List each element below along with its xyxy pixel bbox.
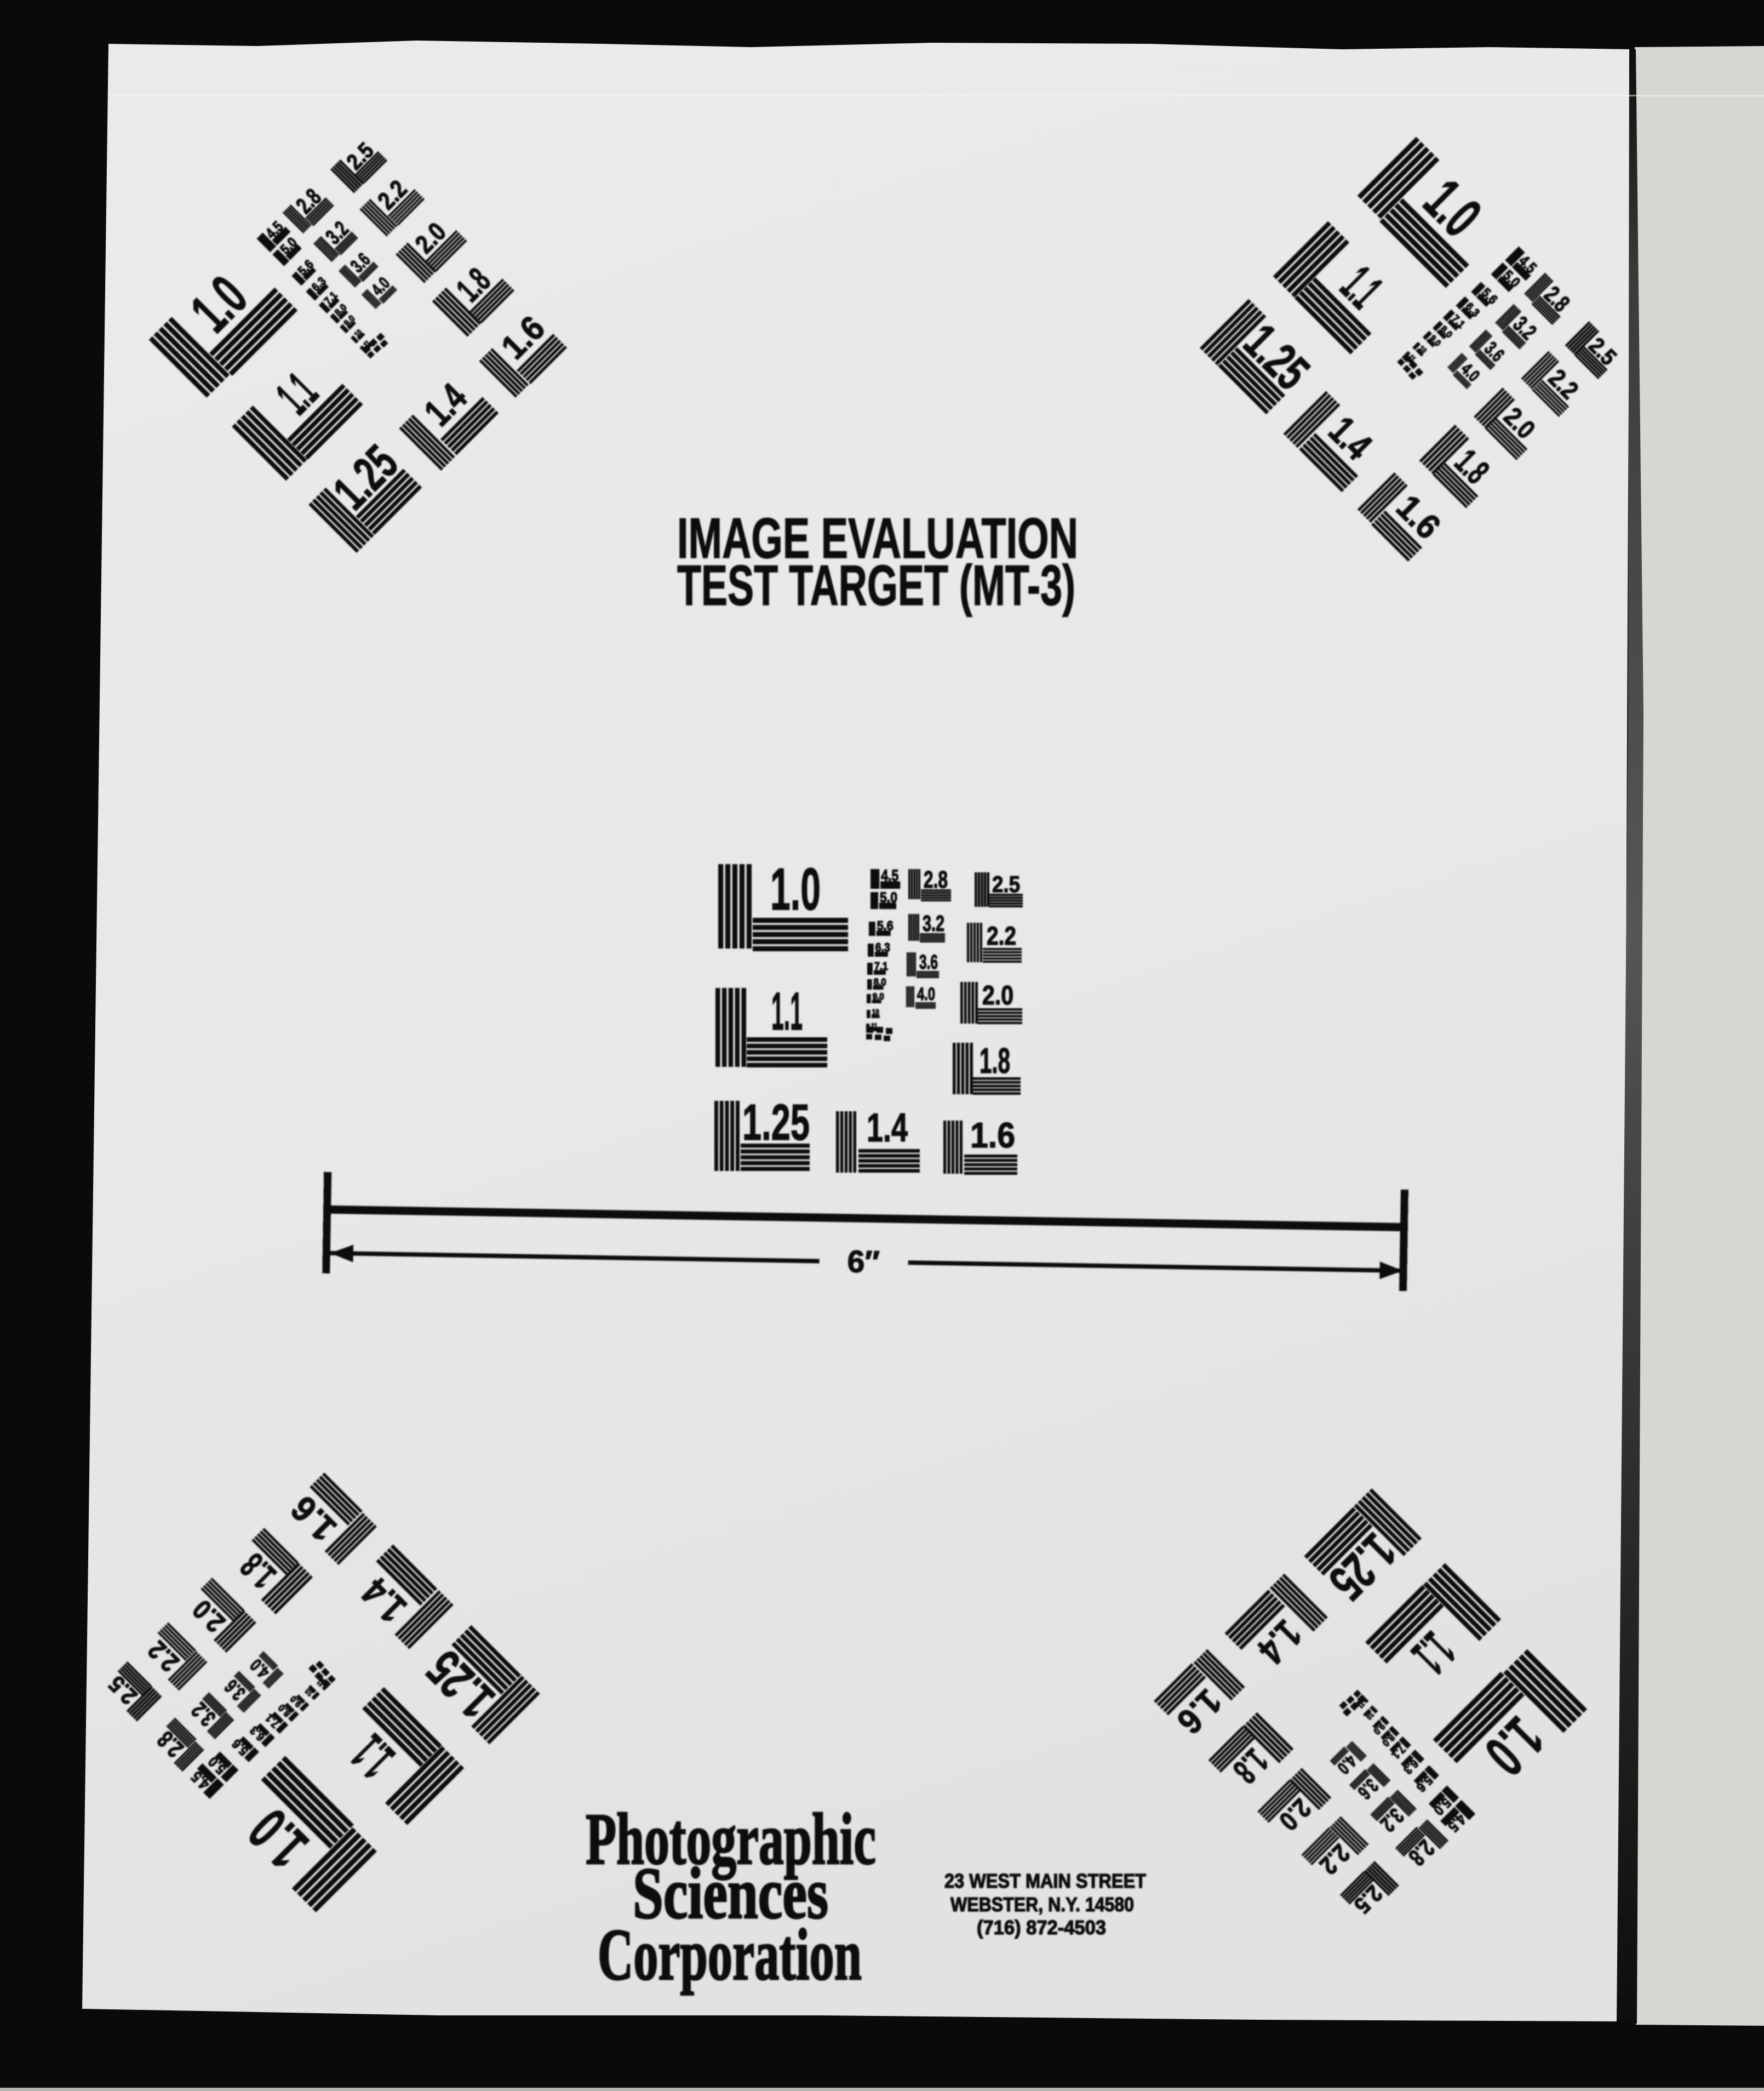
svg-text:6″: 6″ — [847, 1244, 880, 1279]
svg-text:Corporation: Corporation — [598, 1914, 862, 1995]
svg-text:23 WEST MAIN STREET: 23 WEST MAIN STREET — [944, 1870, 1146, 1892]
svg-text:WEBSTER, N.Y. 14580: WEBSTER, N.Y. 14580 — [950, 1893, 1134, 1916]
svg-text:(716) 872-4503: (716) 872-4503 — [977, 1916, 1106, 1939]
svg-text:TEST TARGET (MT-3): TEST TARGET (MT-3) — [677, 554, 1075, 618]
